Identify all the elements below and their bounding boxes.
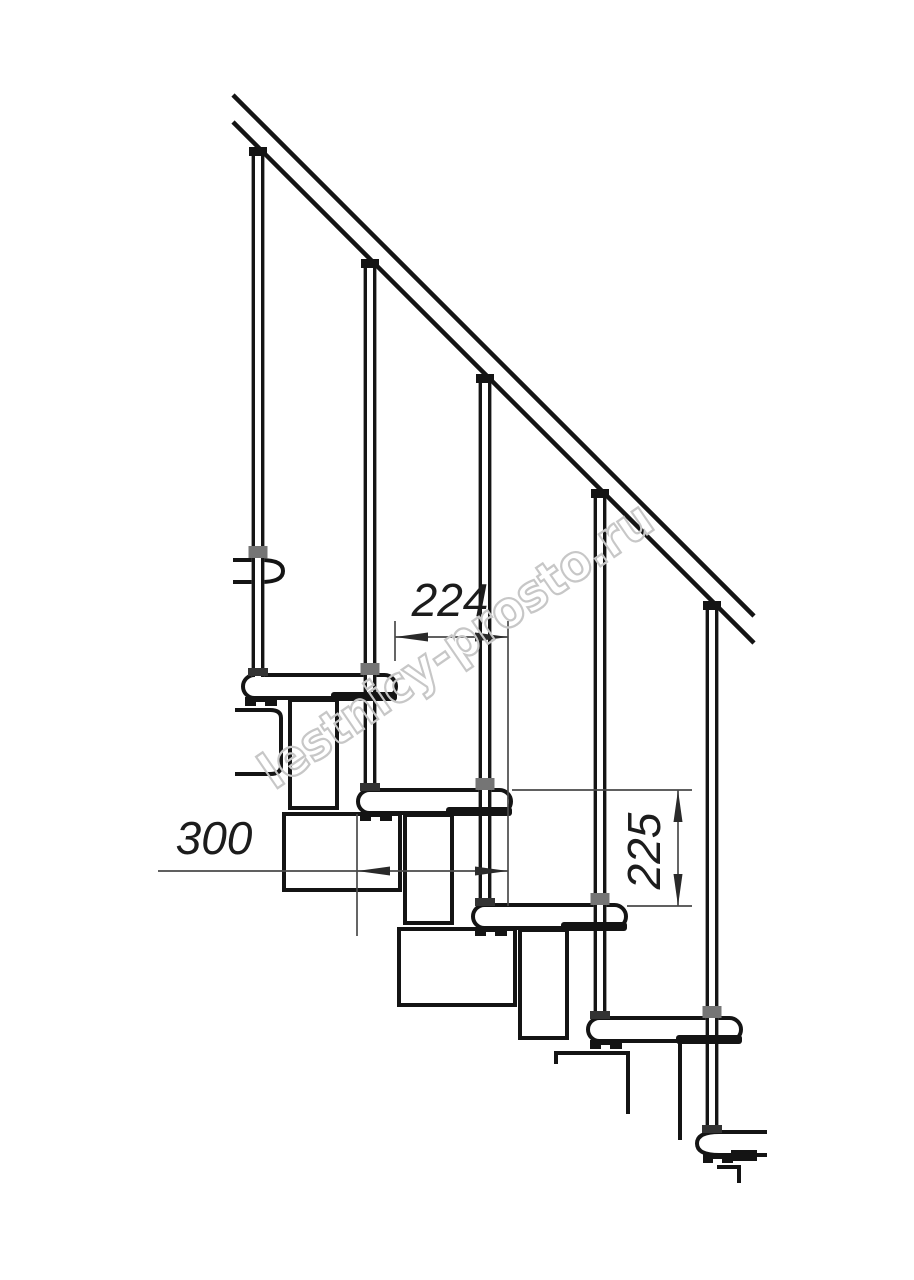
staircase-drawing: 224 300 225 lestnicy-prosto.ru [0,0,914,1280]
collar-crossing-tread0 [249,546,268,558]
baluster-5-rail-collar [703,601,721,610]
dim-225-arrow-down [674,874,683,906]
dim-300-label: 300 [176,812,253,864]
collar-landing-tread4 [590,1011,610,1019]
module-horizontal-2 [399,929,515,1005]
collar-landing-tread2 [360,783,380,791]
collar-crossing-tread2 [476,778,495,790]
dim-225-arrow-up [674,790,683,822]
module-vertical-2 [405,815,452,923]
baluster-5 [703,601,721,1132]
collar-landing-tread3 [475,898,495,906]
tread-4-underside-bar [676,1035,742,1044]
collar-crossing-tread4 [703,1006,722,1018]
collar-crossing-tread3 [591,893,610,905]
stub-tread-5-notch [713,1159,722,1163]
baluster-1 [249,147,267,677]
stub-tread-4-notch [601,1045,610,1049]
baluster-4-rail-collar [591,489,609,498]
module-under-bottom-tread-partial [717,1167,739,1183]
baluster-1-rail-collar [249,147,267,156]
stub-tread-3-notch [486,932,495,936]
tread-3-underside-bar [561,922,627,931]
collar-landing-tread5 [702,1125,722,1133]
handrail [233,95,754,643]
staircase-drawing-canvas: 224 300 225 lestnicy-prosto.ru [0,0,914,1280]
collar-landing-tread1 [248,668,268,676]
tread-5-underside-bar [731,1150,757,1161]
stub-tread-1-notch [256,702,265,706]
module-vertical-3 [520,930,567,1038]
baluster-3-rail-collar [476,374,494,383]
tread-2-underside-bar [446,807,512,816]
module-horizontal-1 [284,814,400,890]
stub-tread-2-notch [371,817,380,821]
baluster-2-rail-collar [361,259,379,268]
dim-225-label: 225 [618,812,670,890]
handrail-top-line [233,95,754,616]
module-horizontal-3-partial [556,1053,628,1114]
